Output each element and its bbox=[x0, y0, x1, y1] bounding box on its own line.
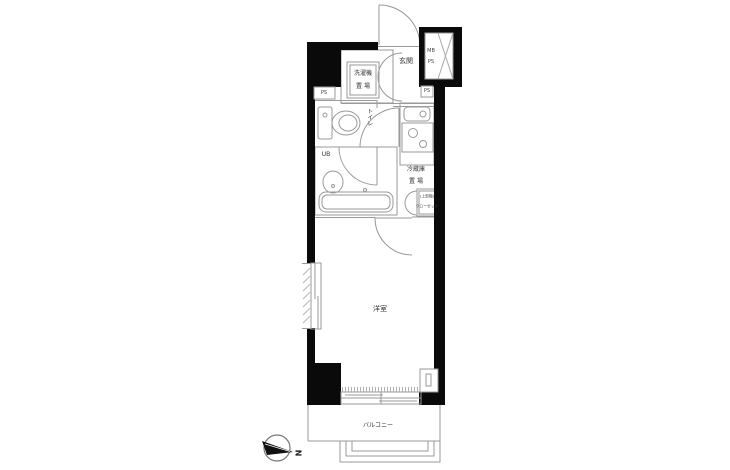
pipe-space-right-label: PS bbox=[424, 89, 430, 94]
refrigerator-label-line1: 冷蔵庫 bbox=[407, 166, 425, 172]
washing-machine-label-line2: 置 場 bbox=[356, 83, 370, 89]
storage-label-line1: (上部棚) bbox=[420, 195, 434, 199]
main-room-label: 洋室 bbox=[373, 306, 387, 313]
compass-north-indicator bbox=[262, 435, 293, 461]
storage-label-line2: クローゼット bbox=[416, 205, 439, 209]
toilet-fixture bbox=[318, 107, 360, 139]
washing-machine-area bbox=[341, 50, 393, 103]
unit-bath-label: UB bbox=[322, 151, 331, 157]
refrigerator-label-line2: 置 場 bbox=[409, 178, 423, 184]
wall-niche-box bbox=[420, 369, 438, 392]
washing-machine-label-line1: 洗濯機 bbox=[354, 70, 372, 76]
entrance-label: 玄関 bbox=[399, 58, 413, 65]
north-label: N bbox=[293, 450, 301, 457]
balcony-label: バルコニー bbox=[363, 422, 393, 428]
pipe-space-left-label: PS bbox=[321, 91, 327, 96]
balcony-outline bbox=[308, 405, 440, 462]
toilet-label: トイレ bbox=[367, 108, 373, 126]
kitchen-counter bbox=[400, 103, 434, 165]
left-window bbox=[302, 263, 321, 329]
pipe-space-shaft-label: PS bbox=[428, 60, 434, 65]
meter-box-shaft bbox=[425, 33, 453, 79]
main-room-door-arc bbox=[315, 217, 434, 255]
balcony-sliding-door bbox=[341, 390, 421, 405]
storage-box bbox=[405, 189, 438, 216]
entrance-door-arc bbox=[379, 5, 420, 46]
bathtub bbox=[319, 189, 393, 213]
floor-plan-image: 玄関 MB PS PS PS 洗濯機 置 場 トイレ UB 冷蔵庫 置 場 (上… bbox=[0, 0, 730, 470]
bathroom-sink bbox=[323, 171, 343, 193]
meter-box-label: MB bbox=[427, 49, 435, 54]
outer-walls bbox=[307, 27, 462, 405]
window-hatch bbox=[303, 268, 310, 323]
